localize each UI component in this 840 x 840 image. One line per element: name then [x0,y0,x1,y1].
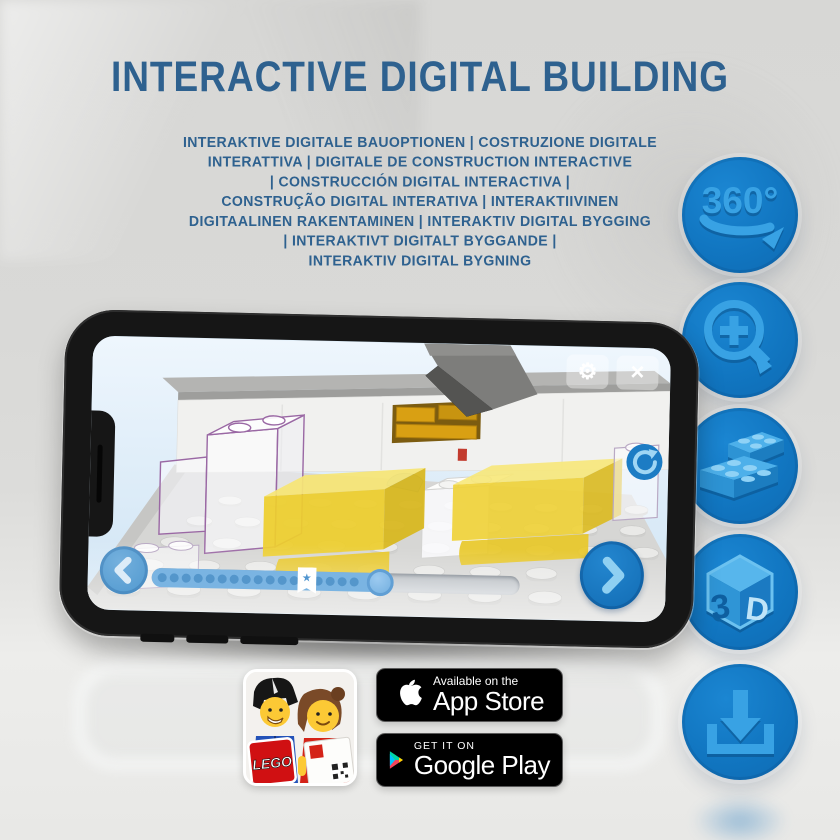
step-dot [338,577,347,586]
step-dot [278,576,287,585]
next-step-button[interactable] [579,541,645,610]
step-dot [254,575,263,584]
step-dot [326,577,335,586]
google-play-badge[interactable]: GET IT ON Google Play [376,733,563,787]
step-dot [230,575,239,584]
step-dot [206,574,215,583]
step-dot [218,574,227,583]
lego-app-icon[interactable]: LEGO [243,669,357,786]
settings-gear-button[interactable]: ⚙ [566,354,609,389]
phone-mockup: ⚙ × [58,309,699,649]
phone-power-button [240,636,298,645]
360-rotation-icon: 360° [682,157,798,273]
3d-cube-icon: 3 D [682,534,798,650]
lego-minifigures-illustration: LEGO [246,672,354,783]
step-dot [242,575,251,584]
chevron-right-icon [579,541,645,610]
app-screen: ⚙ × [87,335,671,622]
brick-icon [682,408,798,524]
gear-icon: ⚙ [577,358,597,384]
phone-volume-button [140,634,174,643]
feature-circle-360: 360° [682,157,798,273]
subtitle-line: INTERAKTIVE DIGITALE BAUOPTIONEN | COSTR… [129,133,711,153]
feature-circle-zoom [682,282,798,398]
chevron-left-icon [99,546,148,595]
close-icon: × [630,359,645,387]
subtitle-line: DIGITAALINEN RAKENTAMINEN | INTERAKTIV D… [129,212,711,232]
subtitle-line: INTERATTIVA | DIGITALE DE CONSTRUCTION I… [129,153,711,173]
download-icon [682,664,798,780]
svg-text:D: D [744,590,771,629]
svg-text:360°: 360° [702,180,779,221]
circle-reflection [692,796,788,840]
page-background: INTERACTIVE DIGITAL BUILDING INTERAKTIVE… [0,0,840,840]
app-store-badge[interactable]: Available on the App Store [376,668,563,722]
phone-notch [87,410,116,537]
subtitle-line: | CONSTRUCCIÓN DIGITAL INTERACTIVA | [129,173,711,193]
subtitle-line: CONSTRUÇÃO DIGITAL INTERATIVA | INTERAKT… [129,193,711,213]
step-dot [266,575,275,584]
google-play-label: Google Play [414,752,550,779]
feature-circle-3d: 3 D [682,534,798,650]
progress-thumb[interactable] [367,569,395,597]
feature-circle-brick [682,408,798,524]
subtitle-multilingual: INTERAKTIVE DIGITALE BAUOPTIONEN | COSTR… [129,133,711,271]
phone-frame: ⚙ × [58,309,699,649]
step-dot [182,574,191,583]
rotate-view-button[interactable] [626,444,663,481]
zoom-in-icon [682,282,798,398]
step-dot [158,573,167,582]
step-dot [170,573,179,582]
subtitle-line: | INTERAKTIVT DIGITALT BYGGANDE | [129,232,711,252]
google-play-icon [389,740,404,780]
apple-icon [389,675,423,715]
close-button[interactable]: × [616,355,659,390]
rotate-icon [626,444,663,481]
speaker-icon [96,445,102,503]
page-title: INTERACTIVE DIGITAL BUILDING [21,54,819,102]
feature-circle-download [682,664,798,780]
phone-reflection [72,660,666,772]
phone-volume-button [186,635,228,644]
step-dot [194,574,203,583]
previous-step-button[interactable] [99,546,148,595]
app-store-label: App Store [433,688,544,715]
step-dot [350,577,359,586]
subtitle-line: INTERAKTIV DIGITAL BYGNING [129,252,711,272]
